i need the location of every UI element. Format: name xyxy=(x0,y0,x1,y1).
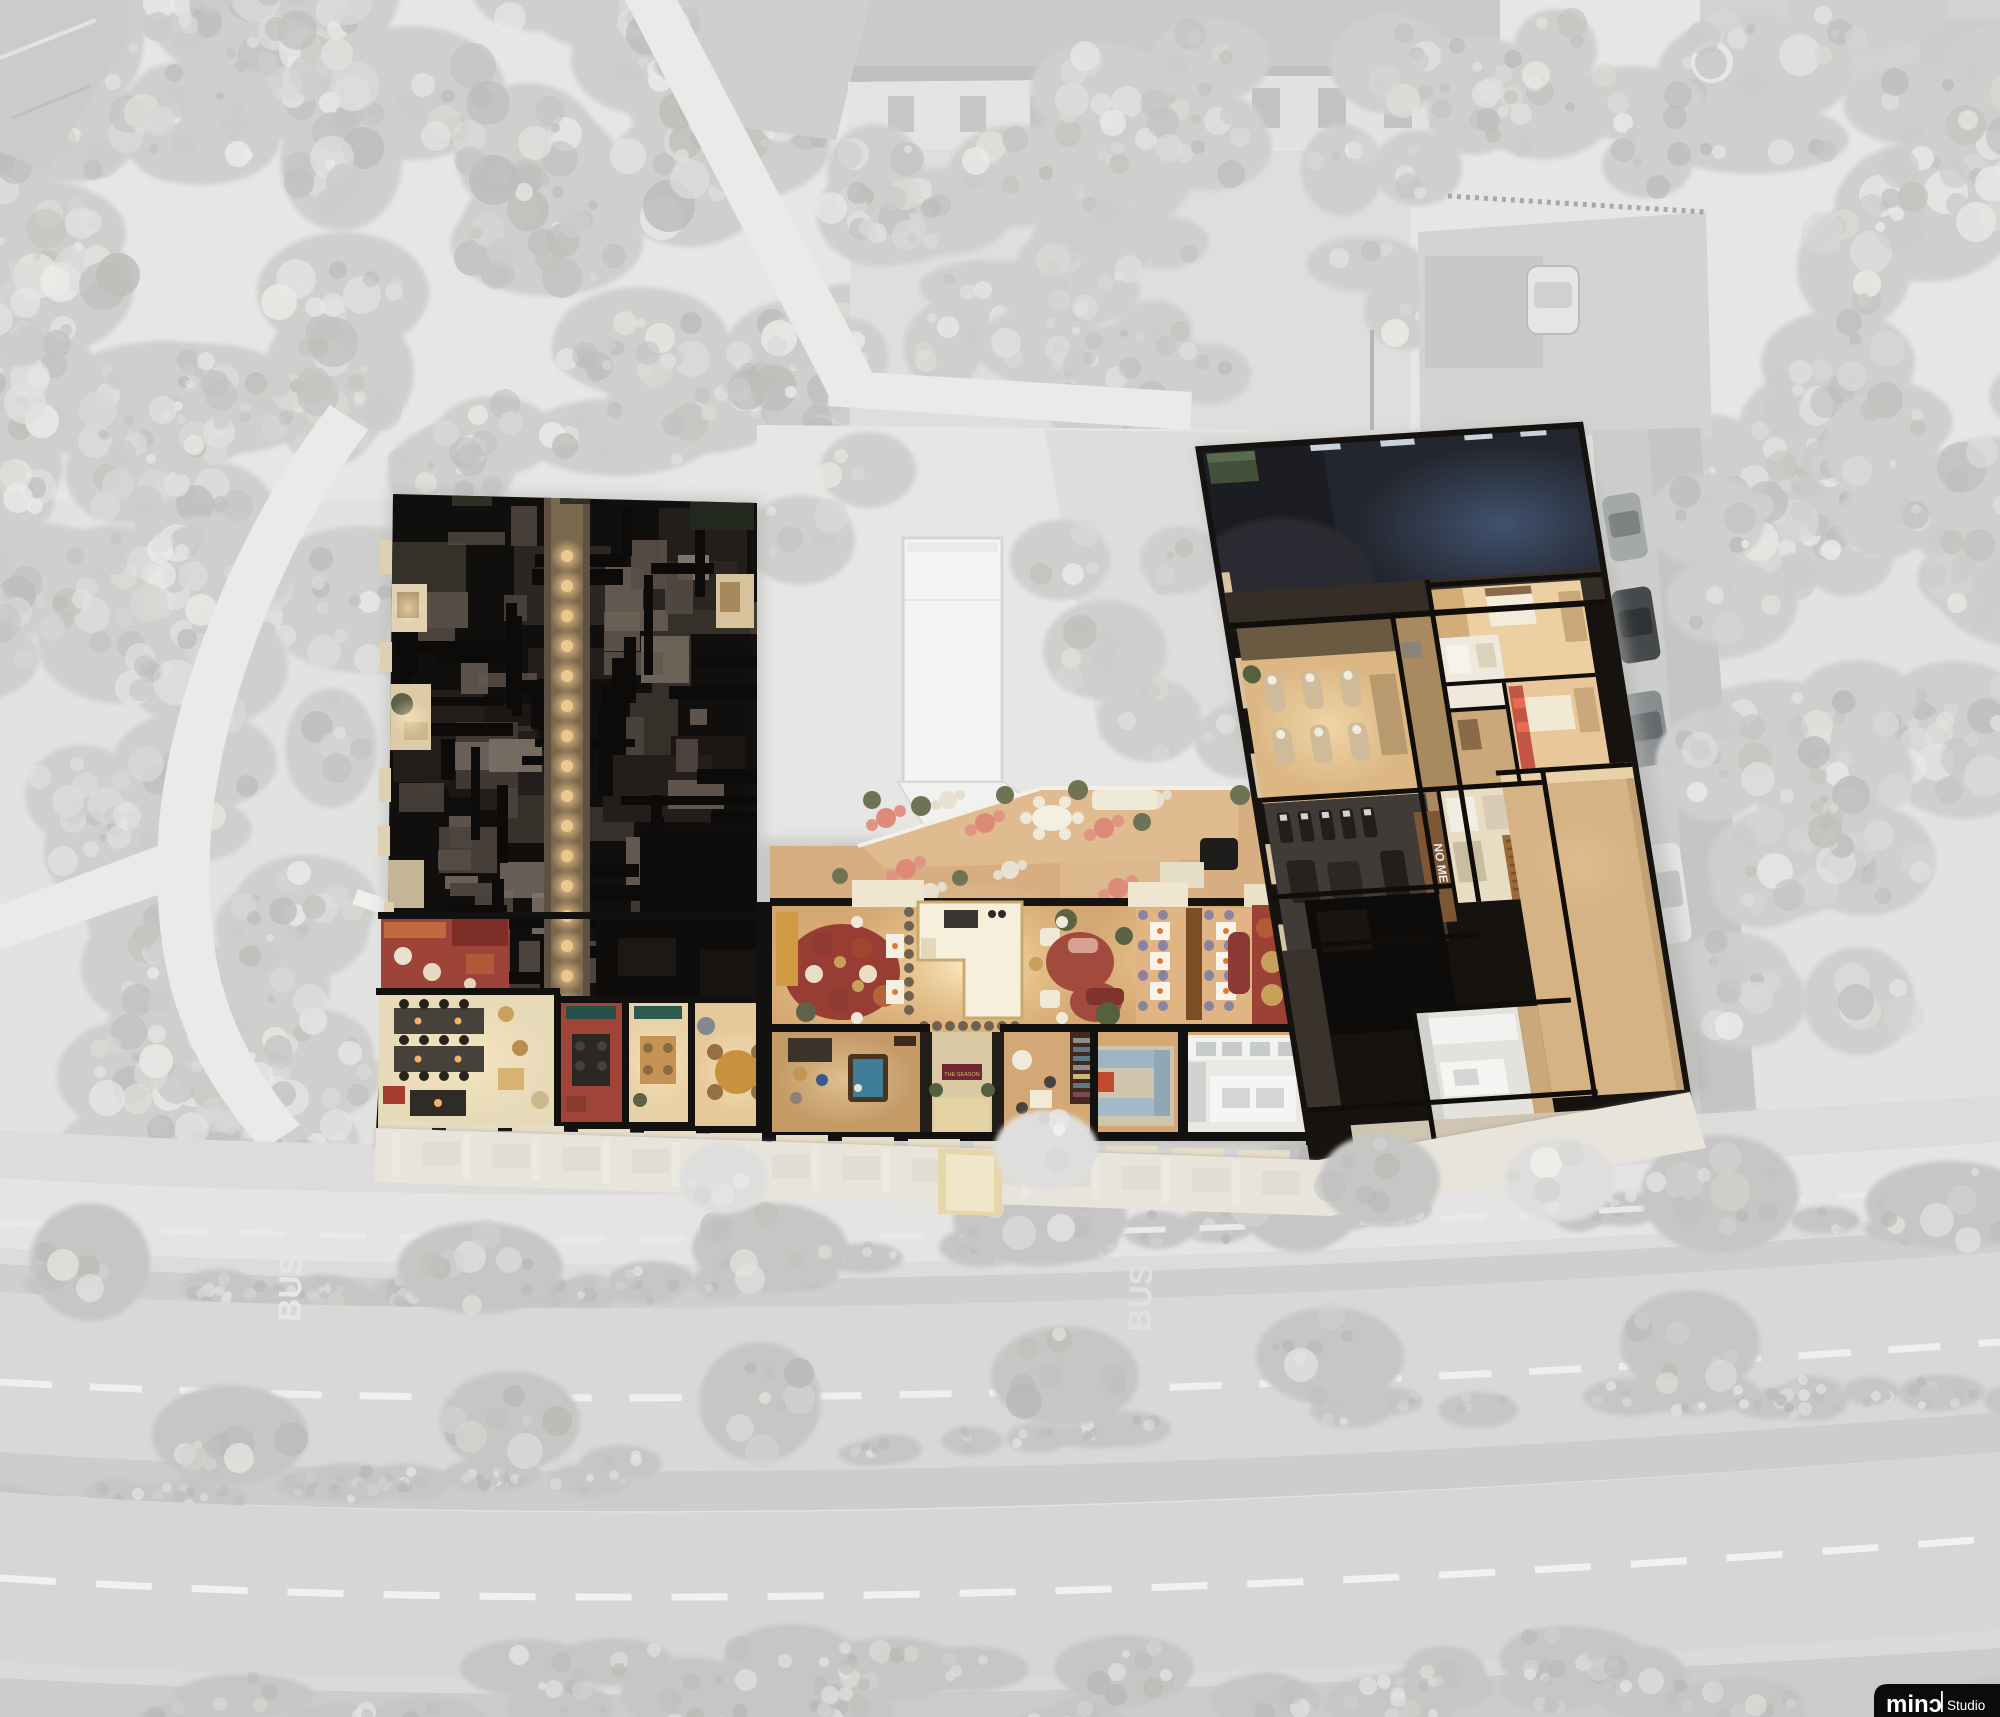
svg-text:THE SEASON: THE SEASON xyxy=(944,1072,979,1078)
svg-text:Studio: Studio xyxy=(1947,1698,1985,1713)
svg-text:minɔ: minɔ xyxy=(1886,1691,1942,1717)
svg-text:BUS: BUS xyxy=(271,1253,309,1322)
svg-text:BUS: BUS xyxy=(1121,1263,1159,1332)
